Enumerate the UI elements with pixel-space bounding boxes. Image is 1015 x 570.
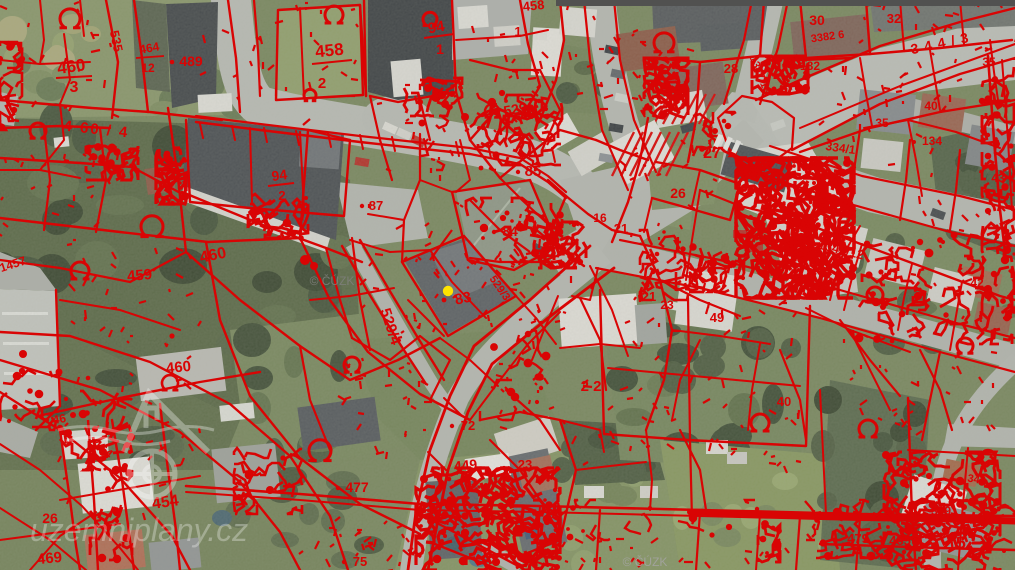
svg-text:49: 49 xyxy=(710,310,724,325)
svg-text:459: 459 xyxy=(126,266,152,285)
svg-text:83: 83 xyxy=(453,289,473,309)
svg-text:1: 1 xyxy=(514,24,521,39)
svg-text:477: 477 xyxy=(345,479,369,495)
svg-text:35: 35 xyxy=(982,55,996,69)
svg-text:2: 2 xyxy=(278,188,285,203)
svg-text:87: 87 xyxy=(369,198,383,213)
svg-text:43: 43 xyxy=(991,171,1005,185)
svg-text:71: 71 xyxy=(445,513,459,528)
svg-text:369: 369 xyxy=(931,504,951,518)
svg-text:182: 182 xyxy=(800,59,820,73)
svg-text:1: 1 xyxy=(436,41,444,57)
svg-text:40: 40 xyxy=(924,99,938,113)
svg-text:15: 15 xyxy=(946,533,967,554)
svg-text:2: 2 xyxy=(318,75,326,92)
svg-text:12: 12 xyxy=(141,61,155,75)
svg-text:30: 30 xyxy=(809,12,825,28)
svg-text:40: 40 xyxy=(777,394,791,409)
svg-text:32: 32 xyxy=(887,11,901,26)
svg-text:3: 3 xyxy=(70,79,79,96)
svg-text:85: 85 xyxy=(525,163,542,180)
svg-text:21: 21 xyxy=(614,221,628,236)
svg-text:© ČÚZK: © ČÚZK xyxy=(310,273,355,288)
svg-text:489: 489 xyxy=(179,53,203,69)
svg-text:75: 75 xyxy=(353,554,367,569)
svg-text:46: 46 xyxy=(52,411,68,427)
svg-text:2: 2 xyxy=(514,124,521,139)
svg-text:26: 26 xyxy=(670,185,686,201)
svg-text:16: 16 xyxy=(593,211,607,225)
svg-text:449: 449 xyxy=(453,456,478,474)
svg-text:42: 42 xyxy=(970,276,984,290)
svg-text:21: 21 xyxy=(642,289,656,304)
svg-text:27: 27 xyxy=(703,145,721,162)
svg-text:uzemniplany.cz: uzemniplany.cz xyxy=(30,512,248,548)
svg-text:35: 35 xyxy=(875,116,889,130)
svg-text:458: 458 xyxy=(314,40,344,62)
svg-text:469: 469 xyxy=(36,549,63,569)
svg-text:485: 485 xyxy=(889,533,911,548)
svg-text:23: 23 xyxy=(518,457,532,472)
svg-text:94: 94 xyxy=(270,166,288,184)
svg-text:460: 460 xyxy=(56,55,87,78)
svg-text:28: 28 xyxy=(724,61,738,76)
svg-text:2 2: 2 2 xyxy=(581,378,602,395)
svg-text:479: 479 xyxy=(847,531,869,546)
svg-text:458: 458 xyxy=(522,0,545,14)
svg-text:23: 23 xyxy=(660,298,674,312)
svg-text:84: 84 xyxy=(502,223,518,239)
svg-text:72: 72 xyxy=(461,418,475,433)
svg-text:134: 134 xyxy=(922,134,942,148)
svg-text:© ČÚZK: © ČÚZK xyxy=(623,554,668,569)
